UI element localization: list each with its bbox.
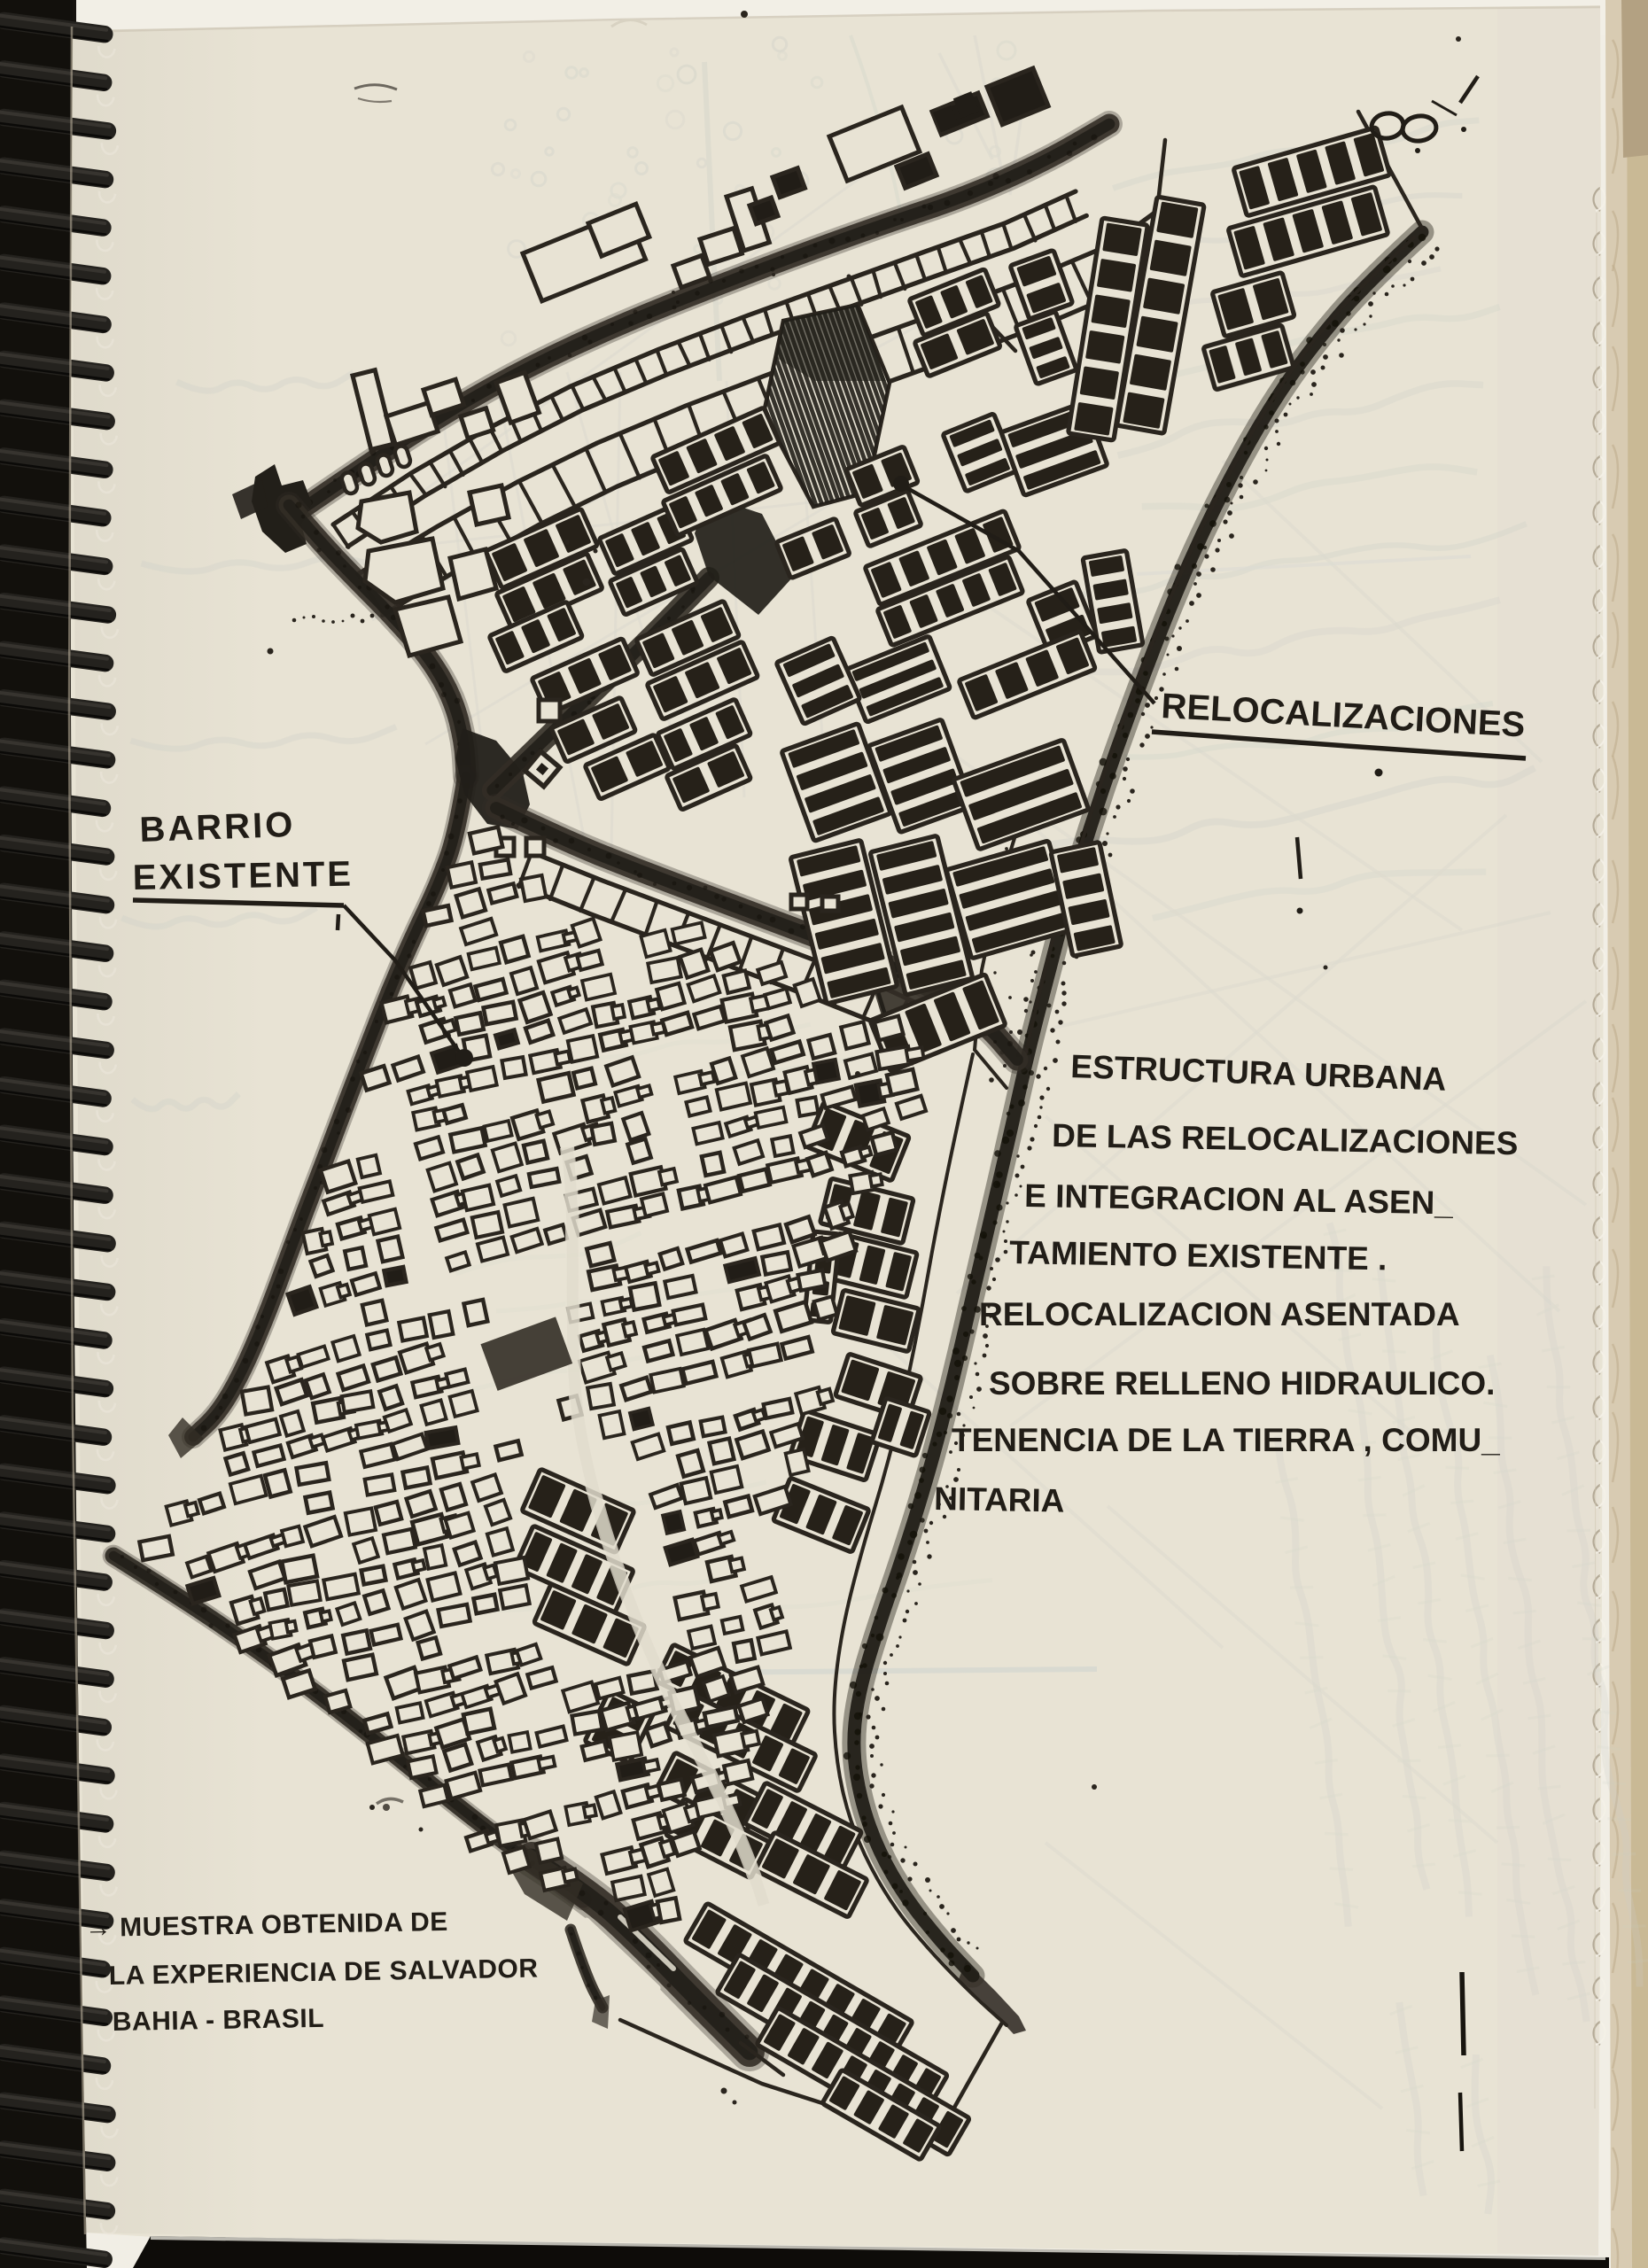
svg-text:E INTEGRACION AL ASEN_: E INTEGRACION AL ASEN_ <box>1024 1177 1454 1221</box>
svg-text:TENENCIA DE LA TIERRA , COMU_: TENENCIA DE LA TIERRA , COMU_ <box>952 1422 1500 1458</box>
svg-text:SOBRE RELLENO HIDRAULICO.: SOBRE RELLENO HIDRAULICO. <box>989 1365 1495 1402</box>
svg-text:TAMIENTO EXISTENTE .: TAMIENTO EXISTENTE . <box>1009 1234 1388 1277</box>
svg-text:BAHIA - BRASIL: BAHIA - BRASIL <box>113 2004 325 2037</box>
svg-text:EXISTENTE: EXISTENTE <box>132 855 354 897</box>
svg-text:RELOCALIZACION ASENTADA: RELOCALIZACION ASENTADA <box>979 1296 1460 1332</box>
svg-text:NITARIA: NITARIA <box>934 1480 1065 1519</box>
svg-text:BARRIO: BARRIO <box>139 805 296 850</box>
